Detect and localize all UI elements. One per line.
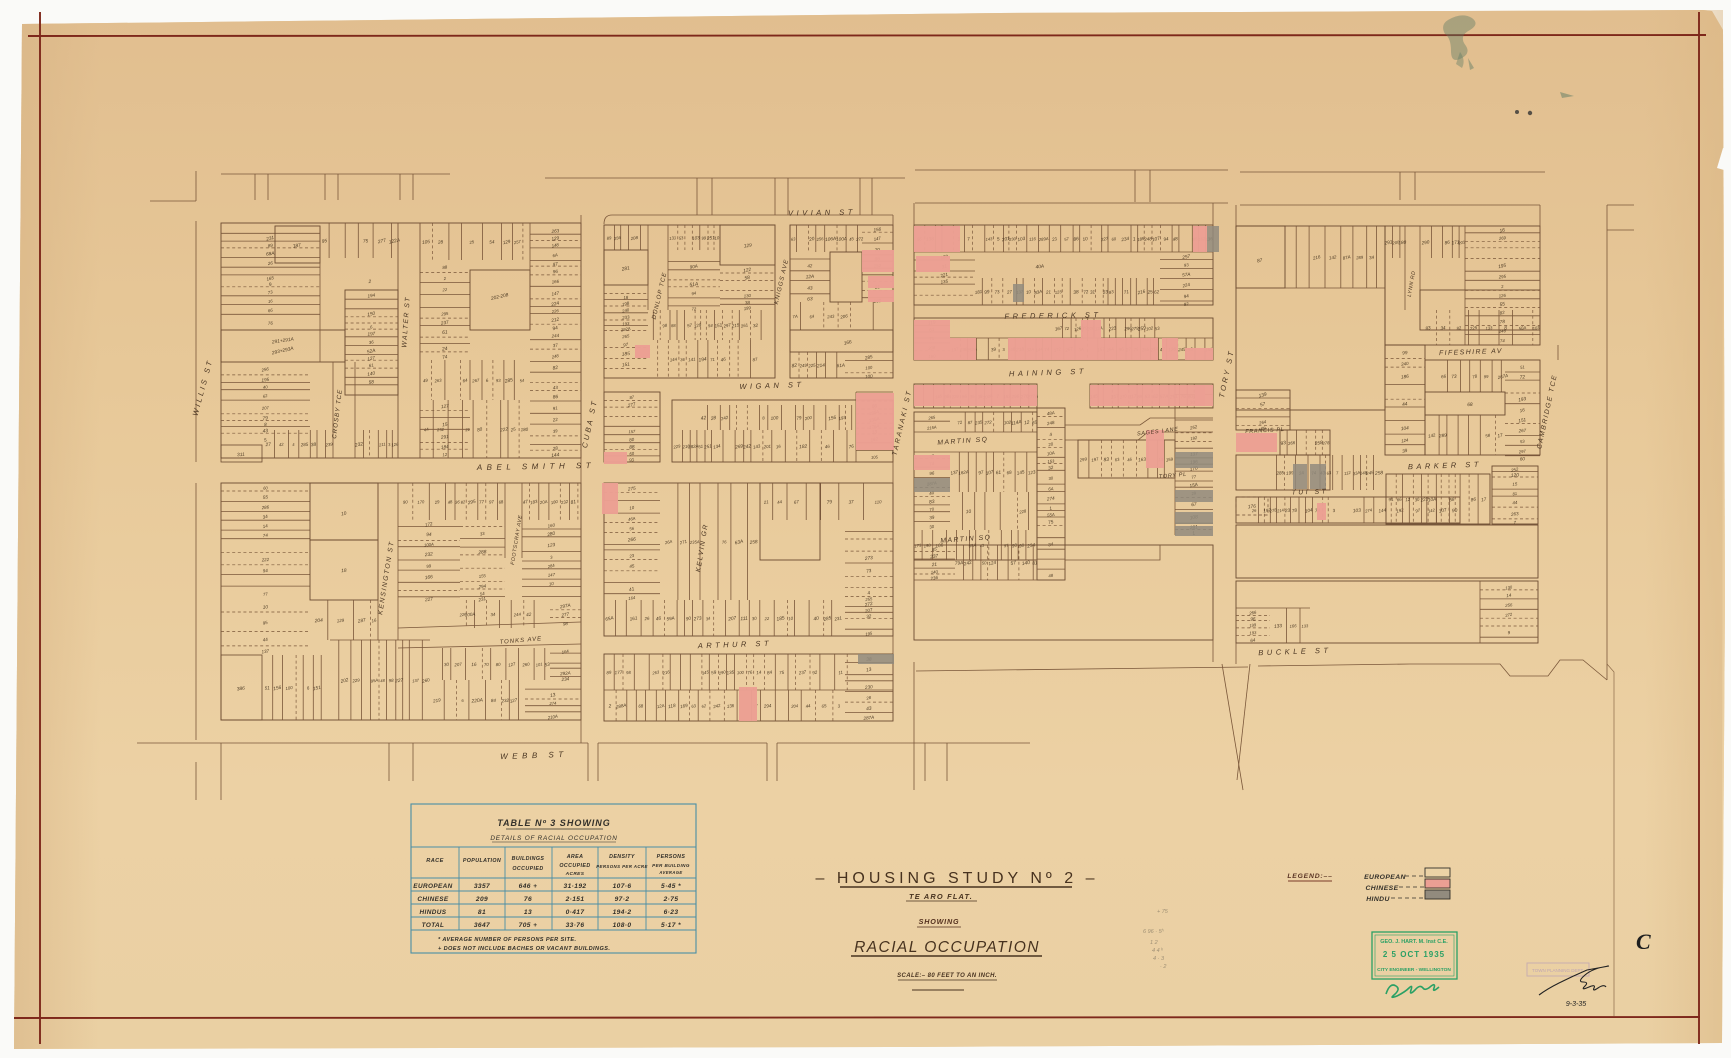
svg-text:* AVERAGE NUMBER OF PERSON: * AVERAGE NUMBER OF PERSONS PER SITE. (438, 937, 577, 943)
svg-text:182: 182 (799, 444, 808, 451)
svg-text:170: 170 (417, 499, 425, 505)
svg-text:TABLE Nº 3 SHOWING: TABLE Nº 3 SHOWING (497, 818, 611, 828)
svg-text:6·23: 6·23 (664, 909, 679, 916)
svg-text:88: 88 (629, 444, 635, 450)
svg-text:AVERAGE: AVERAGE (658, 870, 682, 875)
svg-text:272: 272 (855, 236, 864, 242)
svg-text:186: 186 (1401, 374, 1410, 380)
svg-text:2·75: 2·75 (663, 896, 679, 903)
svg-text:185: 185 (622, 351, 631, 358)
svg-text:143: 143 (985, 236, 993, 242)
svg-text:TOTAL: TOTAL (422, 922, 445, 929)
svg-text:18: 18 (341, 568, 347, 575)
svg-text:227: 227 (424, 597, 434, 603)
svg-text:104: 104 (1401, 425, 1410, 432)
svg-text:81: 81 (478, 909, 486, 916)
svg-text:TUI ST: TUI ST (1292, 488, 1329, 496)
svg-text:97·2: 97·2 (615, 896, 630, 903)
svg-text:23: 23 (1284, 508, 1291, 515)
svg-text:177: 177 (614, 670, 623, 676)
svg-text:+ 75: + 75 (1157, 909, 1169, 915)
svg-text:129: 129 (337, 618, 345, 624)
svg-text:201: 201 (762, 444, 771, 450)
svg-text:OCCUPIED: OCCUPIED (512, 866, 543, 872)
svg-text:2 5 OCT 1935: 2 5 OCT 1935 (1383, 950, 1445, 959)
svg-text:194·2: 194·2 (613, 909, 632, 916)
svg-text:6 96 · 5ʰ: 6 96 · 5ʰ (1143, 928, 1164, 935)
svg-text:110: 110 (874, 499, 882, 505)
svg-text:73: 73 (1451, 374, 1457, 380)
svg-text:111: 111 (740, 616, 748, 623)
svg-text:CHINESE: CHINESE (1365, 885, 1398, 892)
svg-text:204: 204 (790, 703, 799, 709)
svg-text:244: 244 (512, 612, 521, 618)
svg-text:197: 197 (367, 331, 376, 337)
svg-text:PERSONS: PERSONS (657, 854, 686, 860)
svg-text:86: 86 (552, 394, 558, 400)
svg-text:26: 26 (267, 260, 274, 266)
svg-text:144: 144 (551, 452, 560, 459)
svg-text:176: 176 (1248, 504, 1257, 511)
svg-text:71: 71 (710, 357, 715, 362)
svg-text:214: 214 (816, 363, 826, 370)
svg-text:21: 21 (930, 562, 937, 569)
svg-text:10A: 10A (1428, 497, 1437, 504)
svg-text:285: 285 (300, 442, 309, 448)
svg-text:51A: 51A (689, 281, 698, 288)
svg-text:246: 246 (1498, 328, 1507, 334)
svg-text:232: 232 (424, 551, 434, 558)
svg-text:GEO. J. HART. M. Inst C.E.: GEO. J. HART. M. Inst C.E. (1380, 939, 1448, 945)
svg-text:VIVIAN ST: VIVIAN ST (788, 207, 856, 217)
svg-text:274: 274 (548, 701, 557, 707)
svg-text:2·151: 2·151 (565, 896, 585, 903)
svg-text:105: 105 (871, 454, 879, 460)
svg-text:10: 10 (966, 509, 972, 515)
svg-text:180: 180 (520, 427, 528, 433)
svg-text:PERSONS PER ACRE: PERSONS PER ACRE (596, 864, 648, 869)
svg-text:59: 59 (711, 670, 717, 676)
svg-text:78: 78 (1499, 319, 1505, 325)
svg-text:129: 129 (743, 242, 752, 249)
svg-text:235A: 235A (689, 539, 700, 545)
svg-text:166: 166 (1289, 623, 1297, 629)
svg-text:288: 288 (477, 549, 487, 556)
svg-text:209: 209 (475, 896, 488, 903)
svg-text:267: 267 (1517, 428, 1526, 434)
svg-text:286: 286 (260, 504, 269, 510)
svg-text:61A: 61A (836, 363, 845, 369)
svg-text:222: 222 (261, 557, 270, 563)
svg-text:68: 68 (1467, 402, 1473, 408)
svg-text:127: 127 (441, 403, 450, 409)
svg-text:295: 295 (440, 311, 449, 317)
svg-text:TOWN PLANNING DEPT.: TOWN PLANNING DEPT. (1532, 968, 1584, 973)
svg-text:33·76: 33·76 (566, 922, 585, 929)
svg-text:272: 272 (983, 420, 992, 426)
svg-text:9-3-35: 9-3-35 (1566, 1001, 1586, 1008)
svg-text:278: 278 (1321, 440, 1330, 446)
svg-text:84: 84 (491, 698, 497, 703)
svg-text:147: 147 (548, 572, 556, 578)
svg-text:163: 163 (1138, 457, 1147, 463)
svg-text:67: 67 (1191, 502, 1197, 508)
svg-text:21: 21 (1045, 289, 1052, 295)
svg-text:207: 207 (261, 405, 270, 411)
svg-text:LEGEND:––: LEGEND:–– (1287, 873, 1332, 880)
svg-text:31·192: 31·192 (564, 883, 587, 890)
svg-text:EUROPEAN: EUROPEAN (1364, 874, 1406, 881)
svg-text:244: 244 (550, 333, 559, 339)
svg-text:– HOUSING STUDY Nº 2 –: – HOUSING STUDY Nº 2 – (816, 870, 1099, 887)
svg-text:141: 141 (688, 357, 696, 363)
svg-text:51: 51 (264, 685, 270, 690)
svg-text:28: 28 (437, 239, 444, 245)
svg-text:79A: 79A (955, 560, 964, 566)
svg-text:90: 90 (1452, 508, 1458, 514)
svg-text:131: 131 (669, 235, 677, 241)
svg-text:40A: 40A (1035, 264, 1044, 271)
svg-text:12A: 12A (805, 274, 814, 281)
svg-text:96: 96 (1250, 616, 1256, 621)
svg-text:CITY ENGINEER - WELLINGTON: CITY ENGINEER - WELLINGTON (1377, 967, 1451, 973)
svg-text:265: 265 (621, 333, 630, 339)
svg-text:267: 267 (471, 378, 480, 384)
svg-text:100A: 100A (836, 236, 847, 242)
svg-text:243: 243 (826, 314, 835, 320)
svg-text:159: 159 (1165, 457, 1173, 463)
svg-text:26: 26 (643, 616, 650, 622)
svg-text:68A: 68A (266, 251, 275, 258)
svg-text:25: 25 (1146, 289, 1153, 295)
svg-text:34: 34 (1440, 325, 1446, 331)
svg-text:311: 311 (237, 452, 245, 459)
svg-text:386: 386 (237, 686, 246, 693)
svg-text:105: 105 (422, 239, 431, 246)
svg-text:204: 204 (313, 618, 323, 625)
svg-text:TE ARO FLAT.: TE ARO FLAT. (909, 892, 973, 901)
svg-text:55A: 55A (1047, 512, 1055, 518)
svg-text:7A: 7A (792, 314, 798, 320)
svg-text:1 2: 1 2 (1150, 940, 1158, 946)
svg-text:285: 285 (1275, 470, 1285, 476)
svg-text:4 4 ʰ: 4 4 ʰ (1152, 947, 1163, 954)
svg-text:130: 130 (744, 293, 752, 299)
svg-text:289: 289 (1355, 255, 1364, 261)
svg-text:166: 166 (424, 574, 433, 581)
svg-text:FREDERICK ST: FREDERICK ST (1004, 310, 1101, 321)
svg-text:EUROPEAN: EUROPEAN (413, 883, 452, 890)
svg-text:13: 13 (524, 909, 532, 916)
svg-text:107·6: 107·6 (613, 883, 632, 890)
svg-text:157: 157 (628, 429, 636, 435)
svg-text:72: 72 (1519, 374, 1525, 381)
svg-text:133: 133 (1301, 623, 1309, 629)
svg-text:103: 103 (1353, 508, 1362, 515)
svg-text:646 +: 646 + (519, 883, 538, 890)
svg-text:140: 140 (931, 569, 939, 575)
svg-text:273: 273 (864, 555, 874, 562)
svg-text:24: 24 (441, 346, 448, 353)
svg-text:31: 31 (1090, 289, 1096, 294)
svg-text:61: 61 (442, 330, 448, 336)
svg-text:ACRES: ACRES (565, 871, 585, 877)
svg-text:269: 269 (1498, 235, 1507, 241)
svg-text:103: 103 (692, 235, 701, 241)
svg-text:44: 44 (1512, 500, 1518, 505)
svg-text:81: 81 (1032, 560, 1038, 566)
svg-text:5·45 *: 5·45 * (661, 883, 681, 890)
svg-text:57A: 57A (1182, 272, 1191, 278)
svg-text:295: 295 (1497, 274, 1506, 280)
svg-text:292A: 292A (559, 670, 571, 676)
svg-text:6A: 6A (1048, 486, 1054, 491)
svg-text:153: 153 (1047, 458, 1055, 464)
svg-text:· 2: · 2 (1160, 964, 1166, 970)
svg-text:100: 100 (770, 415, 779, 421)
svg-text:HINDU: HINDU (1366, 896, 1390, 903)
svg-text:100A: 100A (424, 542, 434, 548)
svg-text:108·0: 108·0 (613, 922, 632, 929)
svg-text:38: 38 (1073, 289, 1079, 296)
svg-text:126: 126 (1498, 293, 1506, 299)
svg-text:43: 43 (807, 285, 813, 290)
svg-text:184: 184 (441, 444, 450, 450)
svg-text:RACE: RACE (426, 858, 443, 864)
svg-text:42: 42 (526, 612, 532, 617)
svg-text:54: 54 (489, 239, 495, 245)
svg-text:116: 116 (1029, 236, 1037, 242)
svg-text:207: 207 (453, 662, 462, 668)
svg-text:81: 81 (1512, 491, 1517, 497)
svg-text:245: 245 (1177, 347, 1186, 353)
svg-text:180: 180 (1398, 240, 1407, 246)
svg-text:3357: 3357 (474, 883, 490, 890)
svg-text:POPULATION: POPULATION (463, 858, 501, 864)
svg-text:83: 83 (1103, 457, 1109, 464)
svg-text:249: 249 (798, 363, 807, 369)
svg-text:193: 193 (1249, 630, 1257, 636)
svg-text:256: 256 (1504, 602, 1513, 608)
svg-text:10: 10 (263, 604, 269, 609)
svg-text:DENSITY: DENSITY (609, 854, 635, 860)
svg-text:+ DOES NOT INCLUDE BACHES: + DOES NOT INCLUDE BACHES OR VACANT BUIL… (438, 946, 610, 952)
svg-text:27: 27 (264, 442, 271, 448)
svg-text:AREA: AREA (566, 854, 584, 860)
svg-text:3647: 3647 (474, 922, 490, 929)
svg-text:RACIAL OCCUPATION: RACIAL OCCUPATION (854, 939, 1040, 956)
svg-text:99: 99 (1402, 350, 1408, 355)
svg-text:SCALE:– 80 FEET TO AN INCH.: SCALE:– 80 FEET TO AN INCH. (897, 973, 997, 979)
svg-text:100: 100 (865, 365, 873, 371)
svg-text:166: 166 (551, 279, 559, 285)
svg-text:HINDUS: HINDUS (420, 909, 447, 916)
svg-text:258: 258 (1374, 470, 1384, 477)
svg-text:100: 100 (865, 373, 873, 379)
svg-text:289: 289 (1438, 433, 1448, 439)
svg-text:263: 263 (550, 228, 560, 234)
svg-text:195: 195 (261, 377, 270, 383)
svg-text:37: 37 (848, 499, 854, 504)
svg-text:60: 60 (1520, 456, 1526, 462)
svg-text:BUILDINGS: BUILDINGS (512, 856, 545, 862)
svg-text:OCCUPIED: OCCUPIED (559, 863, 590, 869)
svg-text:16: 16 (471, 662, 477, 667)
svg-text:4 · 3: 4 · 3 (1153, 956, 1165, 962)
svg-text:294: 294 (763, 703, 773, 709)
svg-text:55: 55 (262, 494, 268, 500)
svg-text:227: 227 (394, 678, 404, 685)
svg-text:63: 63 (807, 296, 813, 302)
svg-text:CHINESE: CHINESE (417, 896, 449, 903)
svg-text:83: 83 (929, 499, 935, 506)
svg-text:705 +: 705 + (519, 922, 538, 929)
svg-text:PER BUILDING: PER BUILDING (652, 863, 690, 868)
svg-text:94: 94 (426, 532, 432, 538)
svg-text:15: 15 (442, 422, 448, 429)
svg-text:133: 133 (1274, 623, 1283, 630)
svg-text:43: 43 (866, 706, 872, 713)
svg-text:100: 100 (737, 670, 745, 676)
svg-text:187: 187 (292, 242, 301, 249)
svg-text:120: 120 (1511, 472, 1520, 479)
svg-text:75: 75 (363, 238, 369, 243)
svg-text:51: 51 (1520, 364, 1525, 369)
svg-text:DETAILS OF RACIAL OCCUPATIO: DETAILS OF RACIAL OCCUPATION (490, 835, 617, 842)
svg-text:0·417: 0·417 (566, 909, 585, 916)
svg-text:5·17 *: 5·17 * (661, 922, 681, 929)
svg-text:C: C (1636, 929, 1651, 954)
svg-text:76: 76 (524, 896, 532, 903)
svg-text:SHOWING: SHOWING (919, 917, 960, 926)
